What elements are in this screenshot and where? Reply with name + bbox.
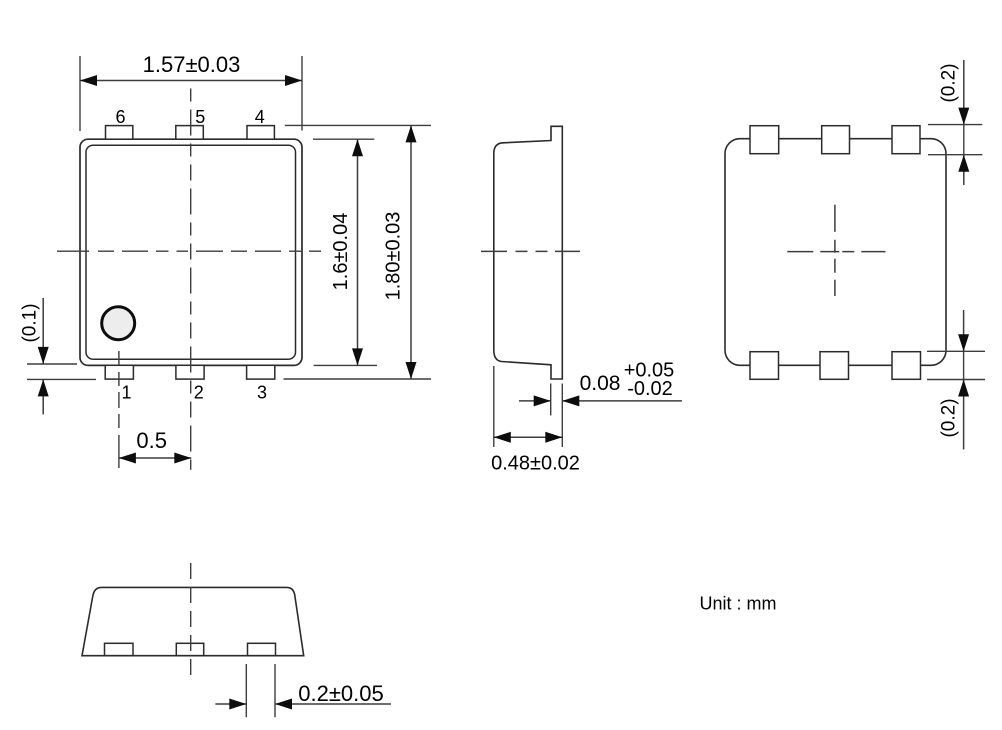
svg-text:1: 1 [121,383,131,403]
svg-text:1.57±0.03: 1.57±0.03 [143,52,241,77]
svg-text:2: 2 [194,383,204,403]
svg-text:3: 3 [257,383,267,403]
svg-text:-0.02: -0.02 [627,378,673,400]
svg-text:Unit : mm: Unit : mm [700,594,777,614]
svg-text:(0.2): (0.2) [938,63,959,102]
svg-text:1.80±0.03: 1.80±0.03 [382,212,404,301]
svg-text:0.08: 0.08 [580,372,621,395]
svg-text:0.48±0.02: 0.48±0.02 [491,453,580,475]
svg-text:4: 4 [255,107,265,127]
svg-text:5: 5 [195,107,205,127]
svg-text:1.6±0.04: 1.6±0.04 [330,213,352,291]
svg-text:6: 6 [115,107,125,127]
svg-text:(0.1): (0.1) [19,303,40,342]
svg-text:0.5: 0.5 [136,428,167,453]
svg-text:0.2±0.05: 0.2±0.05 [298,681,383,706]
svg-text:(0.2): (0.2) [939,398,960,437]
